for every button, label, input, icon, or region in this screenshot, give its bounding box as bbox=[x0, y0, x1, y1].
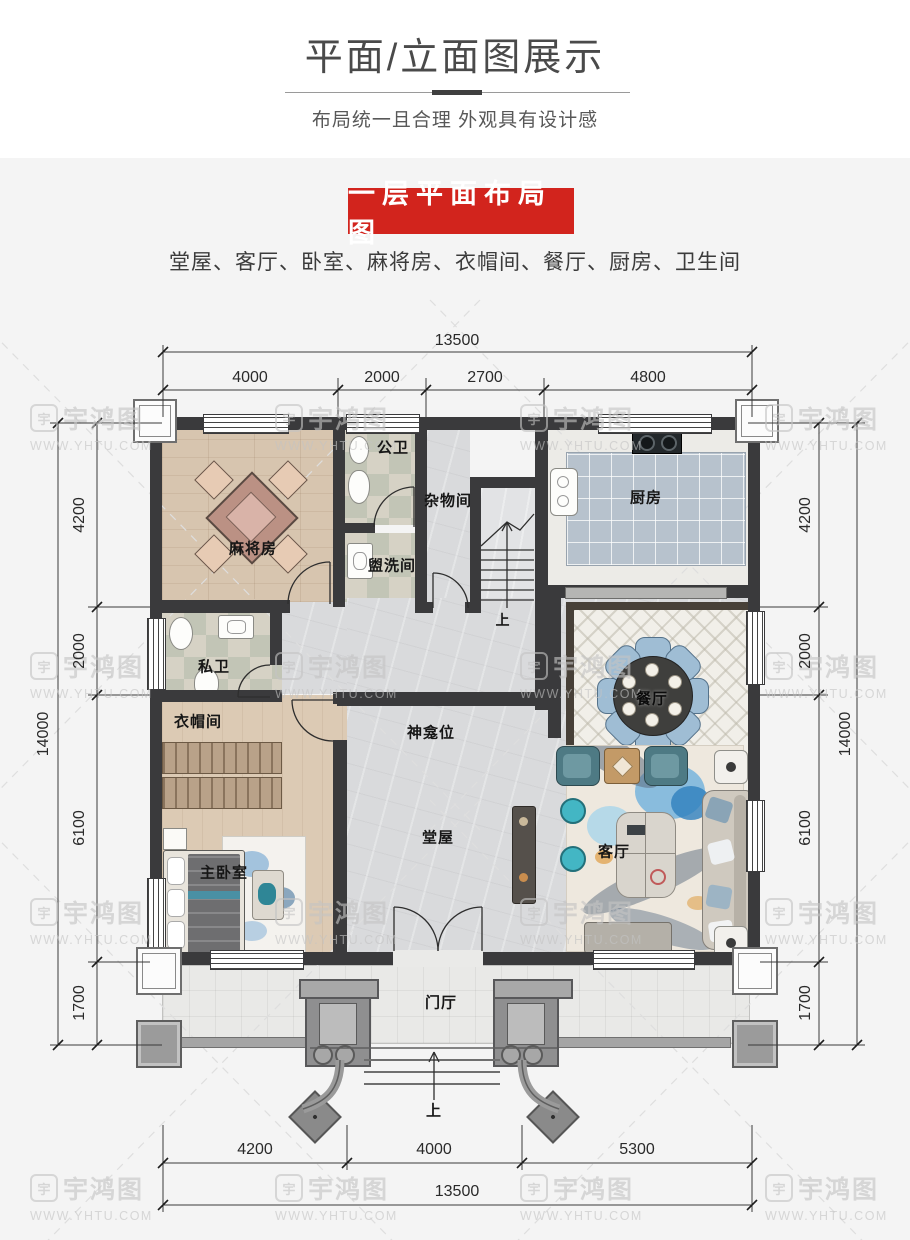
room-label-public-wc: 公卫 bbox=[377, 437, 409, 458]
dim-left-seg: 2000 bbox=[71, 633, 89, 669]
dim-bottom-total: 13500 bbox=[435, 1183, 480, 1201]
room-label-washroom: 盥洗间 bbox=[368, 555, 416, 576]
room-label-private-wc: 私卫 bbox=[198, 656, 230, 677]
dim-left-seg: 4200 bbox=[71, 497, 89, 533]
dim-bottom-seg: 5300 bbox=[619, 1141, 655, 1159]
dim-bottom-seg: 4000 bbox=[416, 1141, 452, 1159]
dim-top-seg: 2700 bbox=[467, 369, 503, 387]
dim-left-seg: 1700 bbox=[71, 985, 89, 1021]
porch-up-label: 上 bbox=[426, 1100, 442, 1121]
room-label-shrine: 神龛位 bbox=[407, 722, 455, 743]
dim-right-seg: 2000 bbox=[797, 633, 815, 669]
room-label-living: 客厅 bbox=[598, 841, 630, 862]
room-label-mahjong: 麻将房 bbox=[229, 538, 277, 559]
dim-left-seg: 6100 bbox=[71, 810, 89, 846]
dim-top-seg: 2000 bbox=[364, 369, 400, 387]
floor-plan-page: 平面/立面图展示 布局统一且合理 外观具有设计感 一层平面布局图 堂屋、客厅、卧… bbox=[0, 0, 910, 1240]
dim-top-seg: 4000 bbox=[232, 369, 268, 387]
dim-left-total: 14000 bbox=[35, 712, 53, 757]
room-label-dining: 餐厅 bbox=[636, 688, 668, 709]
room-label-cloakroom: 衣帽间 bbox=[174, 711, 222, 732]
dim-right-seg: 4200 bbox=[797, 497, 815, 533]
room-label-storage: 杂物间 bbox=[424, 490, 472, 511]
dim-right-seg: 1700 bbox=[797, 985, 815, 1021]
dim-right-seg: 6100 bbox=[797, 810, 815, 846]
dim-bottom-seg: 4200 bbox=[237, 1141, 273, 1159]
room-label-foyer: 门厅 bbox=[425, 992, 457, 1013]
dim-top-total: 13500 bbox=[435, 332, 480, 350]
dim-right-total: 14000 bbox=[837, 712, 855, 757]
dim-top-seg: 4800 bbox=[630, 369, 666, 387]
room-label-master-bedroom: 主卧室 bbox=[200, 862, 248, 883]
stairs-up-label: 上 bbox=[496, 610, 511, 630]
room-label-kitchen: 厨房 bbox=[630, 487, 662, 508]
room-label-main-hall: 堂屋 bbox=[422, 827, 454, 848]
plan-linework bbox=[0, 0, 910, 1240]
